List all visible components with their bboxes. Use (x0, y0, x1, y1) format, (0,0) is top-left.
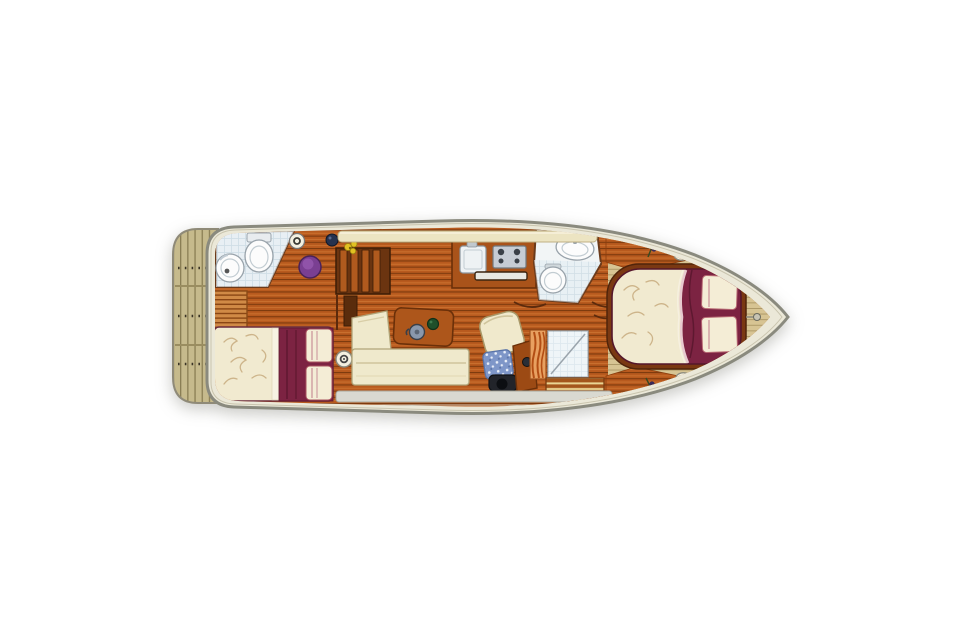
washbasin-icon (216, 254, 244, 282)
oven-icon (475, 272, 527, 280)
deck-fitting-round (290, 234, 305, 249)
stove-icon (493, 246, 526, 268)
shower-stall (548, 331, 588, 377)
radiator-grille (530, 330, 546, 379)
aft-cabin-bed (214, 327, 333, 401)
boat-floor-plan (0, 0, 960, 640)
duvet (612, 269, 688, 364)
sheet-fold (272, 328, 279, 400)
toilet-icon (245, 233, 273, 272)
galley-sink-icon (460, 242, 486, 273)
bottle-icon (428, 319, 439, 330)
side-deck-strip-bottom (336, 391, 612, 402)
floor-plan-canvas (0, 0, 960, 640)
salon-table (393, 308, 454, 347)
stool (299, 256, 321, 278)
deck-fitting-navy (326, 234, 338, 246)
deck-fitting-mid (336, 351, 352, 367)
galley (452, 241, 536, 288)
interior (206, 218, 808, 428)
